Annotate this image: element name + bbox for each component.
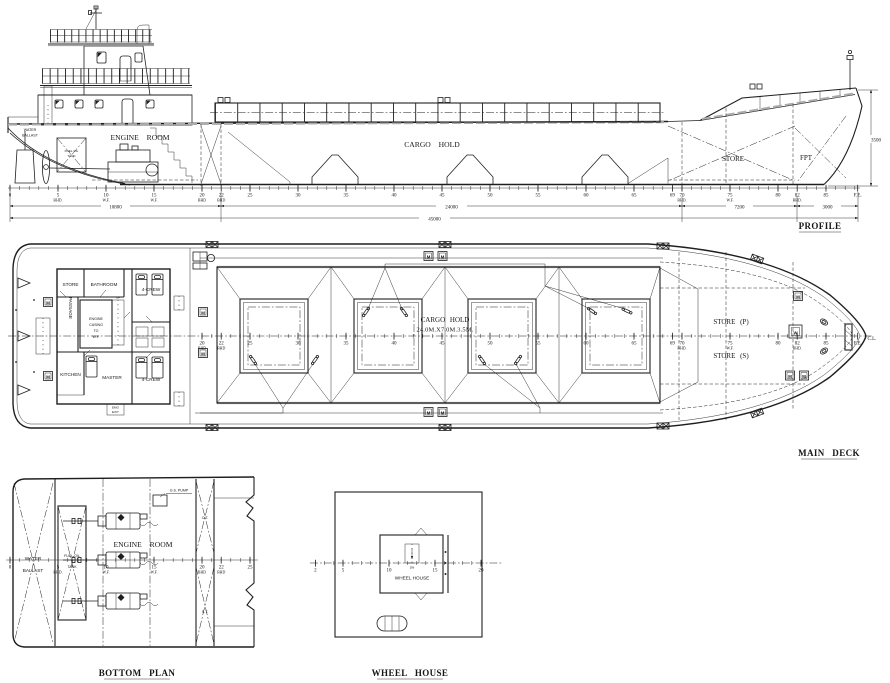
scale-frame-number: 85 [824,342,830,347]
scale-frame-sublabel: BHD [198,198,206,202]
room-casing-label-3: TO [94,329,99,333]
m-box: M [438,408,447,417]
m-box: M [424,408,433,417]
m-box: M [199,308,208,317]
profile-water-ballast-label-1: WATER [24,128,37,132]
scale-frame-number: 80 [776,342,782,347]
deckhouse-side [38,95,192,125]
dim-3500: 3500 [871,139,882,144]
wheelhouse-label: WHEEL HOUSE [395,576,429,581]
scale-frame-sublabel: BHD [217,346,225,350]
scale-frame-number: 2 [314,569,317,574]
scale-frame-sublabel: BHD. [793,346,802,350]
scale-frame-number: 40 [392,194,398,199]
main-engine-side [108,144,158,182]
room-master-label: MASTER [102,375,122,380]
profile-frame-scale: 05BHD.10W.F.15W.F.20BHD22BHD253035404550… [9,185,862,203]
scale-frame-sublabel: W.F. [150,570,157,574]
mooring-boxes: M M M M M M M M M M M W [44,252,809,417]
room-casing-label-1: ENGINE [89,317,103,321]
hatch-coaming-profile [210,98,665,123]
scale-frame-number: 35 [344,194,350,199]
main-deck-caption: MAIN DECK [798,448,860,458]
store-s-label: STORE (S) [713,352,749,360]
scale-frame-number: 65 [632,194,638,199]
scale-frame-number: 50 [488,342,494,347]
wheel-house-frame-scale: 25101520 [314,560,484,574]
scale-frame-number: 69 [670,194,676,199]
windlass-aft [193,252,215,269]
scale-frame-number: 55 [536,342,542,347]
room-crew-bottom-label: 4-CREW [142,377,161,382]
scale-frame-number: 45 [440,342,446,347]
wheel-house-caption: WHEEL HOUSE [372,668,449,678]
maindeck-cargo-hold-label: CARGO HOLD [421,316,470,324]
bp-st-label: S.T. [202,610,208,614]
maindeck-cargo-hold-size: 24.0M.X7.0M.3.5M. [416,327,473,334]
scale-frame-sublabel: W.F. [150,198,157,202]
ship-ga-drawing-sheet: WATER BALLAST FUEL OIL TANK ENGINE ROOM … [0,0,890,683]
bottom-plan-outline [13,477,254,647]
cargo-hatch-plan [195,258,663,413]
scale-frame-sublabel: BHD [217,198,225,202]
profile-engine-room-label: ENGINE ROOM [111,133,170,142]
emg-exit-label-1: EMG [112,406,120,410]
scale-frame-number: F.E. [854,342,862,347]
scale-frame-number: 60 [584,342,590,347]
svg-text:M: M [788,374,792,379]
svg-text:M: M [46,300,50,305]
scale-frame-number: 69 [670,342,676,347]
liferaft-cylinder [377,616,407,631]
scale-frame-number: 45 [440,194,446,199]
scale-frame-sublabel: BHD. [53,570,62,574]
dim-10800: 10800 [109,205,122,210]
m-box: M [44,298,53,307]
scale-frame-sublabel: BHD. [53,198,62,202]
profile-fuel-oil-label-1: FUEL OIL [65,149,79,153]
scale-frame-number: 60 [584,194,590,199]
scale-frame-number: 0 [9,566,12,571]
mast [86,6,102,29]
scale-frame-sublabel: W.F. [726,198,733,202]
scale-frame-number: F.E. [854,194,862,199]
svg-text:M: M [201,351,205,356]
dim-45000: 45000 [428,217,441,222]
m-box: M [800,371,809,380]
emg-exit-label-2: EXIT [112,410,119,414]
m-box: M [438,252,447,261]
m-box: M [424,252,433,261]
m-box: M [786,371,795,380]
scale-frame-sublabel: BHD [198,346,206,350]
scale-frame-sublabel: W.F. [102,198,109,202]
bottom-plan-frame-scale: 05BHD.10W.F.15W.F.20BHD22BHD25 [9,557,253,575]
scale-frame-number: 25 [248,194,254,199]
dim-3000: 3000 [823,205,834,210]
scale-frame-number: 40 [392,342,398,347]
m-box: M [794,292,803,301]
scale-frame-number: 85 [824,194,830,199]
stairs-up-label: UP [116,296,120,300]
profile-caption: PROFILE [799,221,842,231]
scale-frame-number: 30 [296,342,302,347]
scale-frame-sublabel: W.F. [102,570,109,574]
profile-fuel-oil-label-2: TANK [67,154,76,158]
scale-frame-number: 5 [342,569,345,574]
bottom-plan-caption: BOTTOM PLAN [99,668,176,678]
m-box: M [44,372,53,381]
wheelhouse-plan [380,535,443,593]
room-store-label: STORE [62,282,78,287]
main-deck-view: M M M M M M M M M M M W STORE BATHROOM 4… [8,242,876,460]
scale-frame-number: 80 [776,194,782,199]
profile-store-label: STORE [722,155,744,163]
bp-gs-pump-label: G.S. PUMP [170,489,189,493]
scale-frame-number: 20 [479,569,485,574]
hatch-rigging [195,264,632,413]
room-casing-label-4: W.F. [93,335,100,339]
cargo-hold-profile [228,122,682,185]
bp-engine-room-label: ENGINE ROOM [114,540,173,549]
superstructure [38,6,192,125]
profile-cargo-hold-label: CARGO HOLD [404,140,460,149]
scale-frame-number: 25 [248,566,254,571]
svg-text:M: M [802,374,806,379]
bp-water-ballast-1: WATER [25,556,42,561]
room-bathroom-label: BATHROOM [91,282,118,287]
scale-frame-sublabel: BHD. [677,346,686,350]
scale-frame-sublabel: BHD [217,570,225,574]
store-p-label: STORE (P) [713,318,749,326]
dim-24000: 24000 [445,205,458,210]
room-passage-label: PASSAGE [68,297,73,319]
scale-frame-number: 30 [296,194,302,199]
engine-plan-1 [63,513,158,529]
svg-text:M: M [796,294,800,299]
room-crew-top-label: 4-CREW [142,287,161,292]
bp-fuel-oil-2: TANK [67,565,77,569]
scale-frame-number: 50 [488,194,494,199]
svg-text:M: M [427,254,431,259]
profile-view: WATER BALLAST FUEL OIL TANK ENGINE ROOM … [8,6,888,232]
scale-frame-number: 10 [387,569,393,574]
rudder-propeller [15,131,110,184]
svg-text:M: M [46,374,50,379]
scale-frame-number: 25 [248,342,254,347]
windlass-letter: W [793,331,798,336]
svg-text:M: M [441,410,445,415]
svg-text:M: M [201,310,205,315]
bp-water-ballast-2: BALLAST [23,568,44,573]
dim-7200: 7200 [735,205,746,210]
room-kitchen-label: KITCHEN [60,372,81,377]
profile-water-ballast-label-2: BALLAST [22,134,39,138]
bp-fuel-oil-1: FUEL OIL [64,554,80,558]
svg-text:M: M [427,410,431,415]
store-fpt-profile [668,104,846,186]
bottom-plan-view: WATER BALLAST FUEL OIL TANK ENGINE ROOM … [6,477,258,679]
scale-frame-number: 55 [536,194,542,199]
svg-text:M: M [441,254,445,259]
scale-frame-number: 15 [433,569,439,574]
centerline-label: C.L. [868,337,877,342]
wheelhouse-stairs [405,544,419,563]
bp-ot-label: O.T. [202,516,209,520]
scale-frame-sublabel: W.F. [726,346,733,350]
wheel-house-view: DN WHEEL HOUSE 25101520 WHEEL HOUSE [310,492,502,679]
engine-plan-3 [63,593,158,609]
stairs-dn-label: DN [410,566,414,570]
wheelhouse-top-deck [335,492,482,637]
scale-frame-number: 65 [632,342,638,347]
room-casing-label-2: CASING [89,323,103,327]
ship-general-arrangement-svg: WATER BALLAST FUEL OIL TANK ENGINE ROOM … [0,0,890,683]
scale-frame-sublabel: BHD [198,570,206,574]
scale-frame-number: 35 [344,342,350,347]
hull-profile [8,50,862,185]
scale-frame-number: 0 [9,194,12,199]
gs-pump [153,494,192,507]
main-deck-frame-scale: 20BHD22BHD2530354045505560656970BHD.75W.… [198,333,862,351]
profile-fpt-label: FPT [800,154,813,162]
